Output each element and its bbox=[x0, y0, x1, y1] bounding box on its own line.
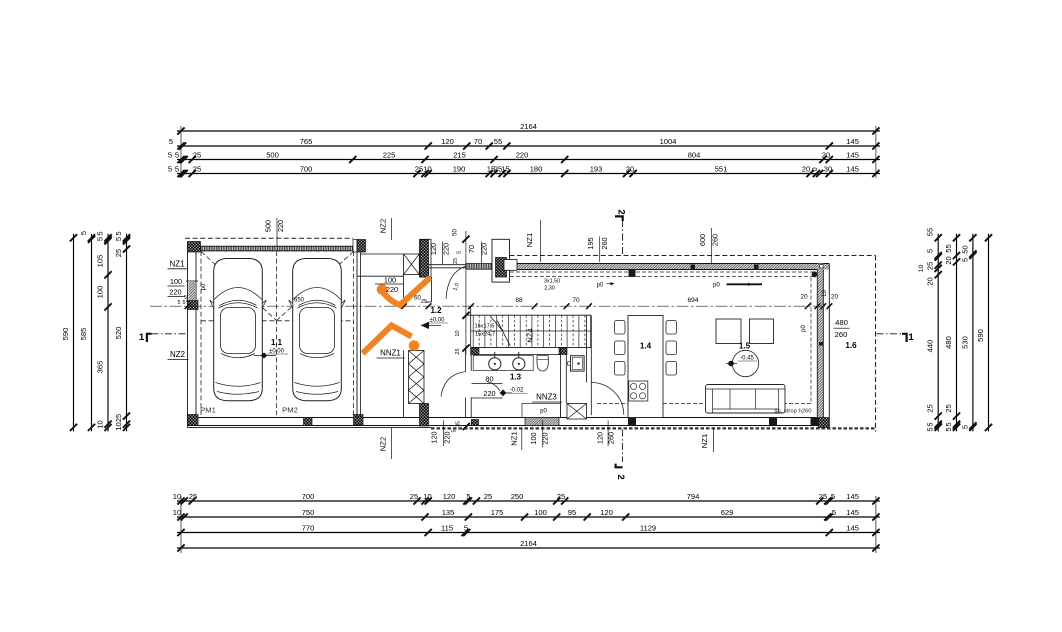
svg-text:55: 55 bbox=[944, 244, 953, 252]
svg-text:480: 480 bbox=[835, 318, 848, 327]
svg-text:5: 5 bbox=[79, 231, 88, 235]
svg-text:100: 100 bbox=[170, 277, 182, 286]
svg-text:2: 2 bbox=[616, 209, 627, 214]
svg-text:530: 530 bbox=[960, 336, 969, 349]
svg-text:p0: p0 bbox=[597, 282, 604, 288]
svg-text:1: 1 bbox=[908, 332, 914, 343]
svg-text:190: 190 bbox=[453, 165, 466, 174]
svg-text:25: 25 bbox=[926, 262, 935, 270]
svg-text:5: 5 bbox=[114, 231, 123, 235]
svg-text:20: 20 bbox=[626, 165, 634, 174]
svg-text:1.1: 1.1 bbox=[271, 338, 283, 347]
svg-text:120: 120 bbox=[600, 508, 613, 517]
svg-text:30: 30 bbox=[824, 165, 832, 174]
svg-text:10: 10 bbox=[822, 290, 828, 297]
svg-text:220: 220 bbox=[480, 243, 489, 255]
svg-text:10: 10 bbox=[173, 508, 181, 517]
svg-text:55: 55 bbox=[926, 228, 935, 236]
svg-text:55: 55 bbox=[494, 137, 502, 146]
svg-text:195: 195 bbox=[586, 237, 595, 249]
svg-text:1: 1 bbox=[139, 332, 145, 343]
svg-text:2: 2 bbox=[615, 474, 626, 479]
svg-text:440: 440 bbox=[926, 340, 935, 353]
svg-text:120: 120 bbox=[430, 431, 439, 443]
svg-text:629: 629 bbox=[721, 508, 734, 517]
svg-text:225: 225 bbox=[383, 151, 396, 160]
svg-text:700: 700 bbox=[302, 492, 315, 501]
svg-text:5: 5 bbox=[175, 165, 179, 174]
svg-text:5: 5 bbox=[175, 151, 179, 160]
svg-text:NZ4: NZ4 bbox=[526, 328, 535, 343]
svg-text:p0: p0 bbox=[540, 409, 547, 415]
svg-text:500: 500 bbox=[264, 220, 273, 232]
svg-text:p0: p0 bbox=[801, 325, 807, 332]
svg-text:25: 25 bbox=[114, 249, 123, 257]
svg-text:250: 250 bbox=[511, 492, 524, 501]
svg-text:70: 70 bbox=[467, 245, 476, 253]
svg-text:10: 10 bbox=[114, 422, 123, 430]
svg-text:70: 70 bbox=[474, 137, 482, 146]
svg-text:25: 25 bbox=[926, 404, 935, 412]
svg-text:120: 120 bbox=[443, 492, 456, 501]
svg-text:5: 5 bbox=[926, 422, 935, 426]
svg-text:590: 590 bbox=[61, 328, 70, 341]
svg-text:145: 145 bbox=[846, 524, 859, 533]
svg-text:25: 25 bbox=[114, 414, 123, 422]
svg-text:25: 25 bbox=[410, 492, 418, 501]
svg-text:700: 700 bbox=[300, 165, 313, 174]
svg-text:5: 5 bbox=[114, 237, 123, 241]
svg-text:1.6: 1.6 bbox=[845, 341, 857, 350]
svg-text:35: 35 bbox=[456, 421, 462, 427]
svg-text:1.4: 1.4 bbox=[640, 342, 652, 351]
svg-text:1004: 1004 bbox=[660, 137, 677, 146]
svg-text:145: 145 bbox=[846, 165, 859, 174]
svg-text:590: 590 bbox=[976, 329, 985, 342]
svg-text:5: 5 bbox=[944, 422, 953, 426]
svg-text:95: 95 bbox=[568, 508, 576, 517]
svg-text:220: 220 bbox=[169, 288, 181, 297]
svg-text:3x1,50: 3x1,50 bbox=[544, 279, 560, 285]
svg-text:5: 5 bbox=[464, 524, 468, 533]
svg-text:20: 20 bbox=[800, 294, 808, 301]
svg-text:p0: p0 bbox=[713, 282, 720, 288]
svg-text:NZ2: NZ2 bbox=[379, 219, 388, 234]
svg-text:10: 10 bbox=[423, 492, 431, 501]
svg-text:180: 180 bbox=[530, 165, 543, 174]
svg-text:5: 5 bbox=[169, 137, 173, 146]
svg-text:25: 25 bbox=[944, 404, 953, 412]
svg-text:5: 5 bbox=[168, 151, 172, 160]
svg-text:100: 100 bbox=[534, 508, 547, 517]
svg-text:750: 750 bbox=[302, 508, 315, 517]
svg-text:NZ2: NZ2 bbox=[379, 437, 388, 452]
svg-text:50: 50 bbox=[453, 229, 459, 236]
svg-text:5: 5 bbox=[960, 258, 969, 262]
svg-text:100: 100 bbox=[384, 275, 396, 284]
svg-text:145: 145 bbox=[846, 137, 859, 146]
svg-text:2,30: 2,30 bbox=[544, 286, 555, 292]
svg-text:220: 220 bbox=[516, 151, 529, 160]
svg-text:2164: 2164 bbox=[520, 122, 537, 131]
svg-text:100: 100 bbox=[529, 432, 538, 444]
svg-text:15x24,7: 15x24,7 bbox=[475, 332, 495, 338]
svg-text:5: 5 bbox=[832, 508, 836, 517]
svg-text:520: 520 bbox=[114, 327, 123, 340]
svg-text:193: 193 bbox=[590, 165, 603, 174]
svg-text:20: 20 bbox=[944, 256, 953, 264]
svg-text:175: 175 bbox=[491, 508, 504, 517]
svg-text:70: 70 bbox=[572, 297, 580, 304]
svg-text:10: 10 bbox=[96, 420, 105, 428]
svg-text:600: 600 bbox=[698, 234, 707, 246]
svg-text:25: 25 bbox=[193, 151, 201, 160]
svg-text:20: 20 bbox=[926, 277, 935, 285]
svg-text:sp. strop h260: sp. strop h260 bbox=[774, 409, 812, 415]
svg-text:105: 105 bbox=[96, 255, 105, 268]
svg-text:215: 215 bbox=[453, 151, 466, 160]
svg-text:480: 480 bbox=[944, 336, 953, 349]
svg-text:650: 650 bbox=[294, 298, 305, 304]
svg-text:260: 260 bbox=[835, 330, 848, 339]
svg-text:25: 25 bbox=[453, 258, 459, 264]
svg-text:NZ1: NZ1 bbox=[525, 233, 534, 248]
svg-text:NZ2: NZ2 bbox=[170, 350, 185, 359]
svg-text:220: 220 bbox=[541, 432, 550, 444]
svg-text:770: 770 bbox=[302, 524, 315, 533]
svg-text:20: 20 bbox=[822, 151, 830, 160]
svg-text:145: 145 bbox=[846, 508, 859, 517]
svg-text:260: 260 bbox=[600, 237, 609, 249]
svg-text:10: 10 bbox=[810, 167, 819, 175]
svg-text:NNZ3: NNZ3 bbox=[536, 393, 557, 402]
svg-text:10: 10 bbox=[455, 330, 461, 336]
svg-text:16x17,5: 16x17,5 bbox=[474, 324, 494, 330]
svg-text:5: 5 bbox=[452, 429, 458, 432]
svg-text:5: 5 bbox=[168, 165, 172, 174]
svg-text:10: 10 bbox=[173, 492, 181, 501]
svg-text:585: 585 bbox=[79, 328, 88, 341]
svg-text:5: 5 bbox=[831, 492, 835, 501]
svg-text:25: 25 bbox=[189, 492, 197, 501]
svg-text:50: 50 bbox=[960, 245, 969, 253]
svg-text:5: 5 bbox=[926, 249, 935, 253]
svg-text:120: 120 bbox=[429, 243, 438, 255]
svg-text:10: 10 bbox=[918, 265, 925, 273]
svg-text:20: 20 bbox=[802, 165, 810, 174]
svg-text:5: 5 bbox=[96, 231, 105, 235]
svg-text:1.5: 1.5 bbox=[739, 342, 751, 351]
svg-text:804: 804 bbox=[688, 151, 701, 160]
svg-text:25: 25 bbox=[484, 492, 492, 501]
svg-text:5: 5 bbox=[178, 300, 181, 306]
svg-text:145: 145 bbox=[846, 151, 859, 160]
svg-text:p0: p0 bbox=[201, 283, 207, 290]
svg-text:115: 115 bbox=[441, 524, 453, 533]
svg-text:551: 551 bbox=[715, 165, 728, 174]
svg-text:5: 5 bbox=[960, 425, 969, 429]
svg-text:NNZ1: NNZ1 bbox=[380, 349, 401, 358]
svg-text:2164: 2164 bbox=[520, 539, 537, 548]
svg-text:10: 10 bbox=[423, 165, 431, 174]
svg-text:25: 25 bbox=[193, 165, 201, 174]
svg-text:5: 5 bbox=[96, 237, 105, 241]
svg-text:-0.45: -0.45 bbox=[740, 356, 754, 362]
svg-text:PM1: PM1 bbox=[200, 406, 216, 415]
svg-text:500: 500 bbox=[266, 151, 279, 160]
svg-text:100: 100 bbox=[96, 286, 105, 299]
svg-text:25: 25 bbox=[819, 492, 827, 501]
svg-text:PM2: PM2 bbox=[282, 406, 298, 415]
svg-text:1.2: 1.2 bbox=[431, 306, 443, 315]
svg-text:25: 25 bbox=[421, 299, 427, 305]
svg-text:25: 25 bbox=[557, 492, 565, 501]
svg-text:5: 5 bbox=[183, 300, 186, 306]
svg-text:220: 220 bbox=[386, 285, 398, 294]
svg-text:20: 20 bbox=[831, 294, 839, 301]
svg-text:88: 88 bbox=[515, 297, 523, 304]
svg-text:694: 694 bbox=[688, 297, 699, 304]
svg-text:260: 260 bbox=[711, 234, 720, 246]
svg-text:NZ1: NZ1 bbox=[509, 431, 518, 446]
svg-text:794: 794 bbox=[687, 492, 700, 501]
svg-text:25: 25 bbox=[455, 348, 461, 354]
svg-text:145: 145 bbox=[846, 492, 859, 501]
svg-text:220: 220 bbox=[483, 389, 495, 398]
svg-text:5: 5 bbox=[466, 492, 470, 501]
svg-text:NZ1: NZ1 bbox=[170, 260, 186, 269]
svg-text:NZ1: NZ1 bbox=[700, 434, 709, 449]
svg-text:1129: 1129 bbox=[640, 524, 656, 533]
svg-text:±0.00: ±0.00 bbox=[269, 349, 285, 355]
svg-text:5: 5 bbox=[926, 427, 935, 431]
svg-text:5: 5 bbox=[944, 427, 953, 431]
svg-text:15: 15 bbox=[501, 165, 509, 174]
svg-text:25: 25 bbox=[415, 165, 423, 174]
svg-text:5: 5 bbox=[457, 251, 463, 254]
svg-text:120: 120 bbox=[441, 137, 454, 146]
svg-text:135: 135 bbox=[442, 508, 455, 517]
svg-text:±0.00: ±0.00 bbox=[430, 318, 446, 324]
svg-text:765: 765 bbox=[300, 137, 313, 146]
svg-text:365: 365 bbox=[96, 361, 105, 374]
svg-text:120: 120 bbox=[596, 432, 605, 444]
svg-text:1.3: 1.3 bbox=[510, 373, 522, 382]
